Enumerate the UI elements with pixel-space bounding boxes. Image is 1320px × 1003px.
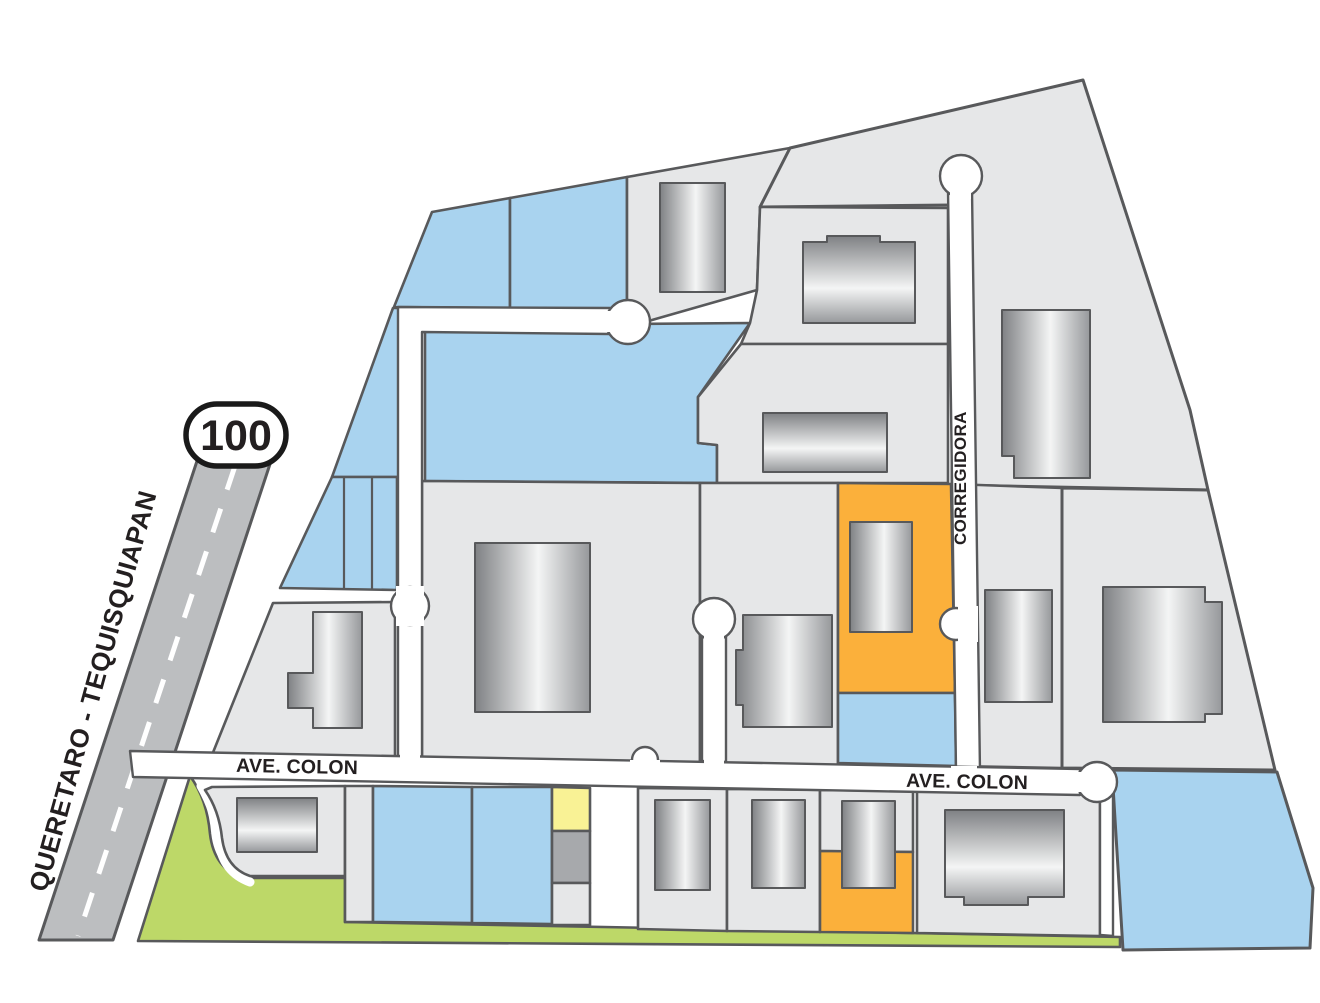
building-north-notched xyxy=(803,236,915,323)
building-south-4 xyxy=(842,801,895,888)
parcel-south-lightgray xyxy=(552,883,590,925)
circle-mask-4 xyxy=(704,628,724,643)
route-shield-number: 100 xyxy=(200,412,272,460)
site-plan-map: 100 QUERETARO - TEQUISQUIAPAN AVE. COLON… xyxy=(0,0,1320,1003)
parcel-south-strip xyxy=(345,786,373,922)
building-south-3 xyxy=(752,800,805,888)
building-orange-parcel xyxy=(850,522,912,632)
building-east-small xyxy=(985,590,1052,702)
parcel-nw-blue-1 xyxy=(394,198,510,308)
parcel-blue-strips-block xyxy=(280,477,397,590)
junction-mask-v2 xyxy=(704,758,724,770)
parcel-blue-strips xyxy=(280,477,397,590)
circle-mask-3 xyxy=(1071,772,1085,792)
building-south-2 xyxy=(655,800,710,890)
circle-mask-2 xyxy=(950,186,971,199)
building-northeast xyxy=(1002,310,1090,478)
parcel-blue-below-orange xyxy=(838,693,957,766)
building-mid-notched xyxy=(736,615,832,727)
road-gap-southeast xyxy=(1100,795,1113,936)
street-label-corregidora: CORREGIDORA xyxy=(951,411,970,545)
building-mid-horizontal xyxy=(763,413,887,472)
circle-mask-6 xyxy=(630,760,660,776)
building-south-5 xyxy=(945,810,1064,905)
parcel-nw-blue-2 xyxy=(510,177,627,311)
parcel-west-blue-sliver xyxy=(332,308,400,477)
junction-mask-v1 xyxy=(400,750,420,762)
parcel-south-midgray xyxy=(552,831,590,883)
parcel-south-yellow xyxy=(552,787,590,831)
parcel-south-blue-1 xyxy=(373,786,472,923)
circle-mask-7 xyxy=(958,606,978,642)
circle-mask-5 xyxy=(396,586,424,626)
road-internal-south xyxy=(702,630,726,762)
parcel-southeast-blue xyxy=(1112,770,1313,950)
building-south-1 xyxy=(237,798,317,852)
building-north-small xyxy=(660,183,725,292)
street-label-ave-colon-east: AVE. COLON xyxy=(906,770,1028,794)
building-east-large xyxy=(1103,587,1222,722)
street-label-ave-colon-west: AVE. COLON xyxy=(236,755,358,779)
building-central-large xyxy=(475,543,590,712)
circle-mask-1 xyxy=(604,311,616,332)
parcel-south-blue-2 xyxy=(472,787,552,924)
route-shield: 100 xyxy=(186,404,286,466)
